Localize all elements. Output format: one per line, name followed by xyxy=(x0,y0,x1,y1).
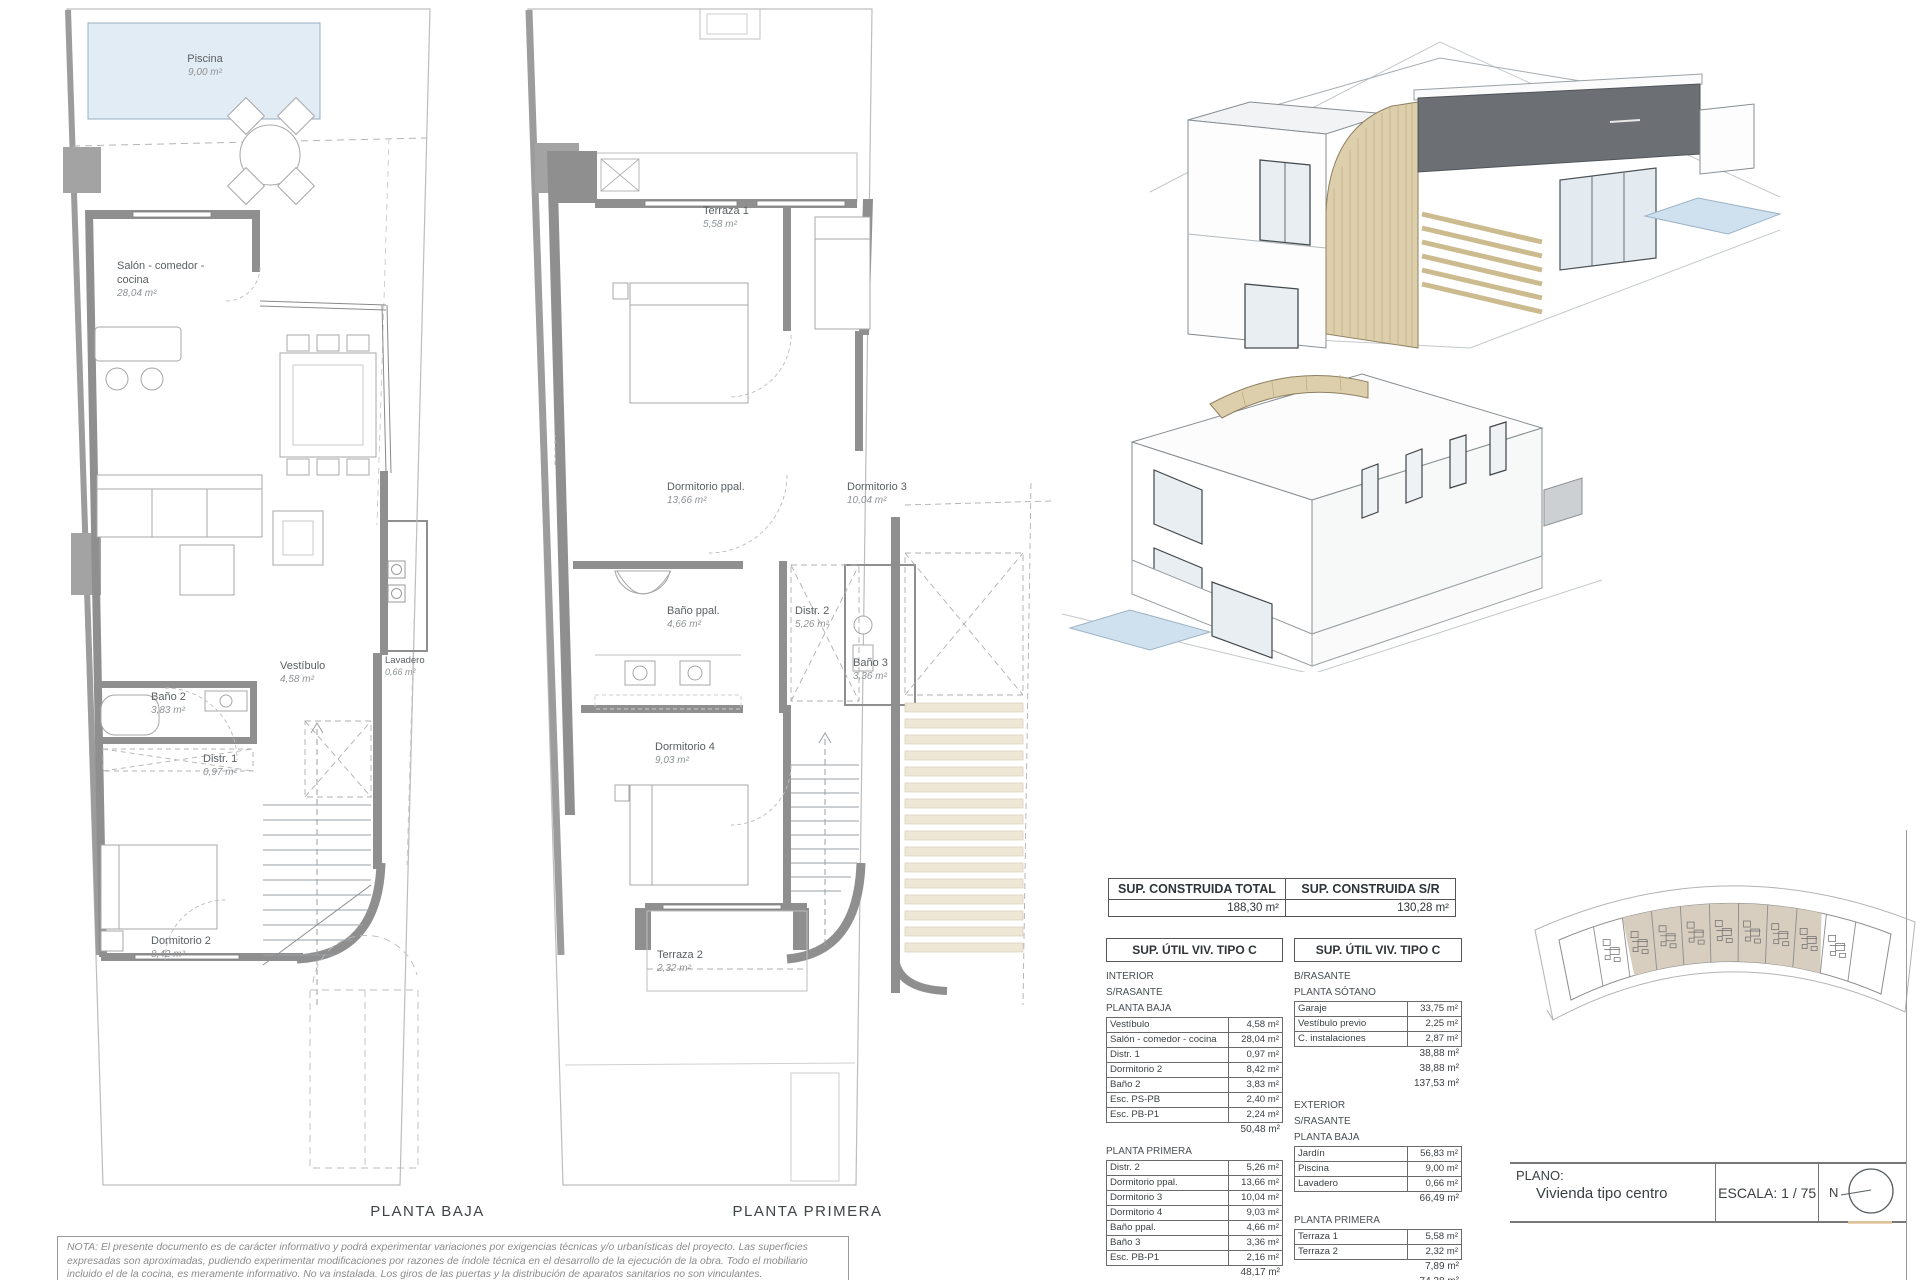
title-block-plano: PLANO: Vivienda tipo centro xyxy=(1510,1164,1716,1221)
dark-roof-volume xyxy=(1418,84,1700,172)
architectural-plan-sheet: Piscina 9,00 m² Salón - comedor - cocina… xyxy=(0,0,1920,1280)
row-value: 9,00 m² xyxy=(1407,1162,1461,1176)
table-row: Esc. PS-PB2,40 m² xyxy=(1107,1092,1282,1107)
row-value: 56,83 m² xyxy=(1407,1147,1461,1161)
title-block-escala: ESCALA: 1 / 75 xyxy=(1716,1164,1819,1221)
table-sup-util-exterior: SUP. ÚTIL VIV. TIPO CB/RASANTEPLANTA SÓT… xyxy=(1294,938,1462,1280)
table-row: Baño 33,36 m² xyxy=(1107,1235,1282,1250)
row-value: 2,25 m² xyxy=(1407,1017,1461,1031)
north-compass-icon: N xyxy=(1819,1164,1906,1219)
table-header: SUP. ÚTIL VIV. TIPO C xyxy=(1294,938,1462,962)
row-name: Terraza 1 xyxy=(1295,1230,1407,1244)
row-value: 2,32 m² xyxy=(1407,1245,1461,1259)
axon-view-front xyxy=(1140,2,1800,352)
highlight-smudge xyxy=(1848,1221,1892,1224)
stair-void xyxy=(791,565,859,701)
section-label: INTERIOR xyxy=(1106,969,1283,985)
table-sup-util-interior: SUP. ÚTIL VIV. TIPO CINTERIORS/RASANTEPL… xyxy=(1106,938,1283,1280)
row-name: Dormitorio 2 xyxy=(1107,1063,1228,1077)
neighbour-stairs xyxy=(905,703,1023,952)
row-name: Salón - comedor - cocina xyxy=(1107,1033,1228,1047)
row-name: Distr. 2 xyxy=(1107,1161,1228,1175)
section-label: PLANTA SÓTANO xyxy=(1294,985,1462,1001)
row-name: Baño 2 xyxy=(1107,1078,1228,1092)
pool-3d xyxy=(1645,198,1780,234)
terraza-2 xyxy=(647,911,807,991)
row-value: 2,87 m² xyxy=(1407,1032,1461,1046)
row-value: 3,83 m² xyxy=(1228,1078,1282,1092)
row-name: Lavadero xyxy=(1295,1177,1407,1191)
area-rows: Garaje33,75 m²Vestíbulo previo2,25 m²C. … xyxy=(1294,1001,1462,1047)
section-label: PLANTA BAJA xyxy=(1294,1130,1462,1146)
bed-dormitorio-2 xyxy=(101,845,217,951)
row-name: Piscina xyxy=(1295,1162,1407,1176)
table-row: Dormitorio 28,42 m² xyxy=(1107,1062,1282,1077)
table-row: Baño 23,83 m² xyxy=(1107,1077,1282,1092)
row-name: Distr. 1 xyxy=(1107,1048,1228,1062)
row-name: Esc. PS-PB xyxy=(1107,1093,1228,1107)
row-value: 4,58 m² xyxy=(1228,1018,1282,1032)
row-name: Terraza 2 xyxy=(1295,1245,1407,1259)
row-value: 2,40 m² xyxy=(1228,1093,1282,1107)
table-cell: SUP. CONSTRUIDA TOTAL 188,30 m² xyxy=(1109,879,1285,916)
plano-label: PLANO: xyxy=(1516,1168,1715,1183)
row-name: Dormitorio 4 xyxy=(1107,1206,1228,1220)
section-label: PLANTA PRIMERA xyxy=(1106,1144,1283,1160)
table-row: C. instalaciones2,87 m² xyxy=(1295,1031,1461,1046)
table-row: Garaje33,75 m² xyxy=(1295,1002,1461,1016)
row-value: 28,04 m² xyxy=(1228,1033,1282,1047)
row-name: Garaje xyxy=(1295,1002,1407,1016)
table-row: Piscina9,00 m² xyxy=(1295,1161,1461,1176)
table-row: Dormitorio ppal.13,66 m² xyxy=(1107,1175,1282,1190)
plano-value: Vivienda tipo centro xyxy=(1516,1185,1715,1202)
row-value: 4,66 m² xyxy=(1228,1221,1282,1235)
row-value: 33,75 m² xyxy=(1407,1002,1461,1016)
row-name: Baño 3 xyxy=(1107,1236,1228,1250)
title-block: PLANO: Vivienda tipo centro ESCALA: 1 / … xyxy=(1510,1162,1906,1223)
row-value: 10,04 m² xyxy=(1228,1191,1282,1205)
neighbour-unit-sliver xyxy=(891,483,1051,1005)
row-value: 2,24 m² xyxy=(1228,1108,1282,1122)
louver-beams xyxy=(1422,214,1542,312)
subtotal-value: 50,48 m² xyxy=(1106,1123,1283,1138)
table-row: Vestíbulo previo2,25 m² xyxy=(1295,1016,1461,1031)
table-row: Terraza 22,32 m² xyxy=(1295,1244,1461,1259)
row-value: 13,66 m² xyxy=(1228,1176,1282,1190)
planta-primera-drawing xyxy=(495,5,1055,1195)
subtotal-value: 66,49 m² xyxy=(1294,1192,1462,1207)
title-block-north: N xyxy=(1819,1164,1906,1221)
kitchen-island xyxy=(95,327,181,390)
row-name: Dormitorio 3 xyxy=(1107,1191,1228,1205)
table-row: Lavadero0,66 m² xyxy=(1295,1176,1461,1191)
area-rows: Distr. 25,26 m²Dormitorio ppal.13,66 m²D… xyxy=(1106,1160,1283,1266)
plan-title-planta-primera: PLANTA PRIMERA xyxy=(715,1203,900,1220)
row-value: 9,03 m² xyxy=(1228,1206,1282,1220)
axon-view-rear xyxy=(1062,342,1602,672)
stairs xyxy=(263,723,371,1005)
glass-doors xyxy=(1560,168,1656,270)
plan-title-planta-baja: PLANTA BAJA xyxy=(340,1203,515,1220)
table-cell: SUP. CONSTRUIDA S/R 130,28 m² xyxy=(1285,879,1455,916)
beds xyxy=(613,217,870,885)
site-plan xyxy=(1527,858,1917,1026)
row-value: 3,36 m² xyxy=(1228,1236,1282,1250)
subtotal-value: 38,88 m² xyxy=(1294,1047,1462,1062)
table-row: Distr. 25,26 m² xyxy=(1107,1161,1282,1175)
dining-table xyxy=(280,335,376,475)
table-row: Dormitorio 310,04 m² xyxy=(1107,1190,1282,1205)
floor-plan-planta-primera: Terraza 1 5,58 m² Dormitorio ppal. 13,66… xyxy=(495,5,1055,1195)
table-value: 188,30 m² xyxy=(1109,900,1285,916)
section-label: S/RASANTE xyxy=(1106,985,1283,1001)
row-value: 0,66 m² xyxy=(1407,1177,1461,1191)
table-header: SUP. CONSTRUIDA TOTAL xyxy=(1109,879,1285,900)
row-value: 8,42 m² xyxy=(1228,1063,1282,1077)
sheet-border xyxy=(1906,830,1907,1280)
section-label: PLANTA PRIMERA xyxy=(1294,1213,1462,1229)
area-rows: Terraza 15,58 m²Terraza 22,32 m² xyxy=(1294,1229,1462,1260)
bano-3-room xyxy=(845,565,915,705)
subtotal-value: 48,17 m² xyxy=(1106,1266,1283,1280)
table-value: 130,28 m² xyxy=(1286,900,1455,916)
table-row: Terraza 15,58 m² xyxy=(1295,1230,1461,1244)
table-row: Dormitorio 49,03 m² xyxy=(1107,1205,1282,1220)
terraza-1 xyxy=(595,153,857,201)
stair-void xyxy=(305,721,371,797)
row-name: Dormitorio ppal. xyxy=(1107,1176,1228,1190)
subtotal-value: 38,88 m² xyxy=(1294,1062,1462,1077)
boundary-block xyxy=(63,147,101,193)
section-label: PLANTA BAJA xyxy=(1106,1001,1283,1017)
row-name: Baño ppal. xyxy=(1107,1221,1228,1235)
window xyxy=(1245,284,1298,348)
row-value: 5,26 m² xyxy=(1228,1161,1282,1175)
wood-slat-facade xyxy=(1326,102,1418,348)
table-sup-construida: SUP. CONSTRUIDA TOTAL 188,30 m² SUP. CON… xyxy=(1108,878,1456,917)
row-name: Jardín xyxy=(1295,1147,1407,1161)
table-row: Jardín56,83 m² xyxy=(1295,1147,1461,1161)
subtotal-value: 137,53 m² xyxy=(1294,1077,1462,1092)
table-row: Vestíbulo4,58 m² xyxy=(1107,1018,1282,1032)
bathroom-ppal-fixtures xyxy=(595,571,741,709)
row-name: Vestíbulo xyxy=(1107,1018,1228,1032)
pool xyxy=(88,23,320,119)
row-name: C. instalaciones xyxy=(1295,1032,1407,1046)
row-name: Esc. PB-P1 xyxy=(1107,1251,1228,1265)
note-box: NOTA: El presente documento es de caráct… xyxy=(57,1236,849,1280)
floor-plan-planta-baja: Piscina 9,00 m² Salón - comedor - cocina… xyxy=(55,5,435,1195)
section-label: S/RASANTE xyxy=(1294,1114,1462,1130)
row-name: Esc. PB-P1 xyxy=(1107,1108,1228,1122)
table-row: Distr. 10,97 m² xyxy=(1107,1047,1282,1062)
row-value: 2,16 m² xyxy=(1228,1251,1282,1265)
subtotal-value: 74,38 m² xyxy=(1294,1275,1462,1280)
section-label: B/RASANTE xyxy=(1294,969,1462,985)
table-row: Esc. PB-P12,16 m² xyxy=(1107,1250,1282,1265)
row-value: 5,58 m² xyxy=(1407,1230,1461,1244)
table-header: SUP. ÚTIL VIV. TIPO C xyxy=(1106,938,1283,962)
sofa xyxy=(97,475,323,595)
closet xyxy=(103,749,253,771)
door-swings xyxy=(555,335,791,825)
area-rows: Jardín56,83 m²Piscina9,00 m²Lavadero0,66… xyxy=(1294,1146,1462,1192)
table-header: SUP. CONSTRUIDA S/R xyxy=(1286,879,1455,900)
bathroom-2-fixtures xyxy=(101,691,247,735)
table-row: Salón - comedor - cocina28,04 m² xyxy=(1107,1032,1282,1047)
row-name: Vestíbulo previo xyxy=(1295,1017,1407,1031)
section-label: EXTERIOR xyxy=(1294,1098,1462,1114)
north-label: N xyxy=(1829,1185,1838,1200)
area-rows: Vestíbulo4,58 m²Salón - comedor - cocina… xyxy=(1106,1017,1283,1123)
subtotal-value: 7,89 m² xyxy=(1294,1260,1462,1275)
table-row: Esc. PB-P12,24 m² xyxy=(1107,1107,1282,1122)
table-row: Baño ppal.4,66 m² xyxy=(1107,1220,1282,1235)
row-value: 0,97 m² xyxy=(1228,1048,1282,1062)
planta-baja-drawing xyxy=(55,5,435,1195)
